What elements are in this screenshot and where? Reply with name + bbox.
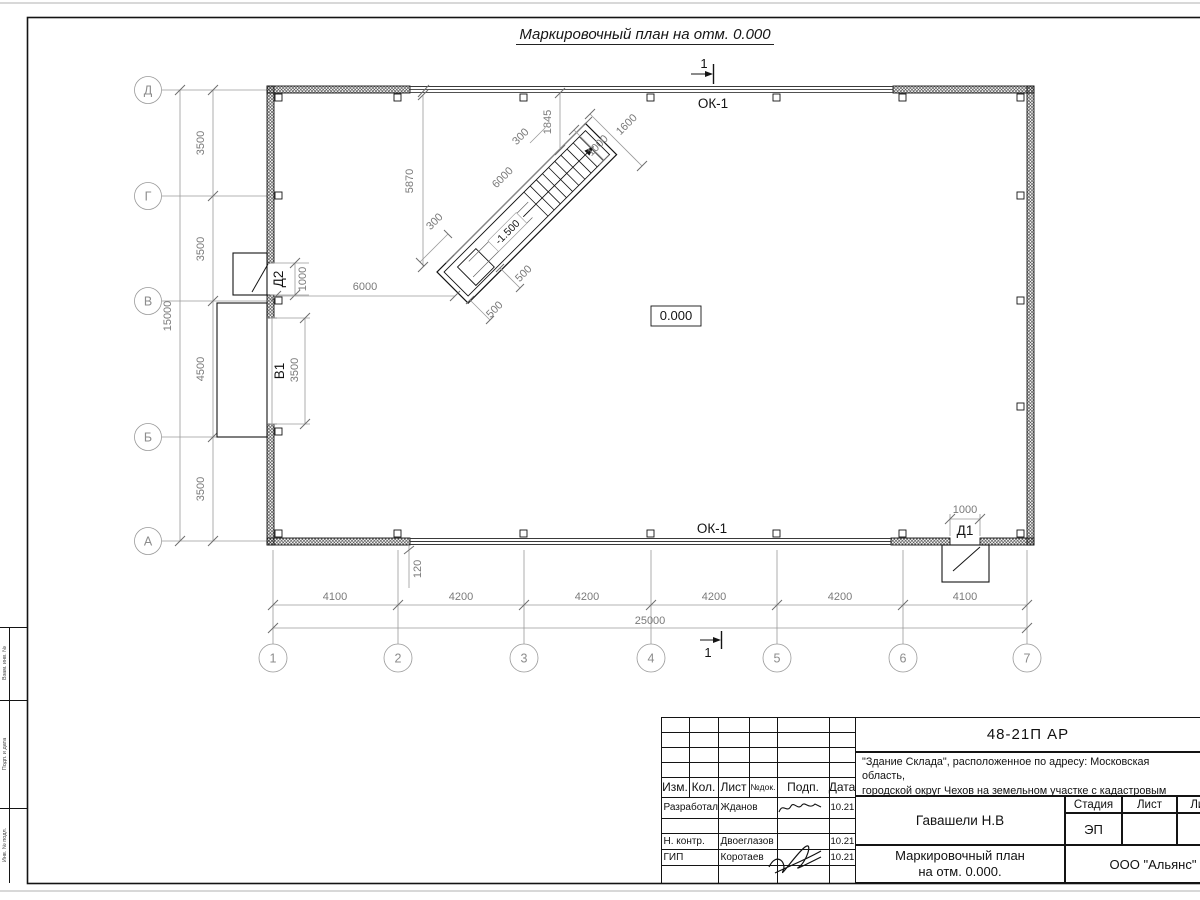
dim-text: 6000 xyxy=(490,165,516,191)
rev-cell xyxy=(829,762,856,778)
rev-cell xyxy=(661,732,690,748)
frame-left-strip: Взам. инв. № Подп. и дата Инв. № подл. xyxy=(0,628,28,884)
window-band-top xyxy=(410,87,893,93)
rev-cell xyxy=(829,747,856,763)
sheets-value xyxy=(1177,813,1200,845)
signer-name: Коротаев xyxy=(718,849,778,866)
dim-text: 1000 xyxy=(953,504,977,516)
desc-line: "Здание Склада", расположенное по адресу… xyxy=(862,756,1149,782)
company-name: ООО "Альянс" xyxy=(1065,845,1200,883)
signer-role: Разработал xyxy=(661,797,719,819)
gate-label: В1 xyxy=(272,363,287,380)
signer-date: 10.21 xyxy=(829,797,856,819)
annotations: ОК-1 ОК-1 0.000 6000 120 1 1 xyxy=(271,56,728,660)
dim-text: 4200 xyxy=(575,591,599,603)
signature-cell xyxy=(777,833,830,850)
rev-header: №док. xyxy=(749,777,778,798)
dim-text: 4200 xyxy=(449,591,473,603)
axis-letter: В xyxy=(144,295,152,309)
sheet-header: Лист xyxy=(1122,796,1177,813)
rev-cell xyxy=(777,732,830,748)
svg-text:1: 1 xyxy=(704,645,711,660)
axis-letter: Б xyxy=(144,431,152,445)
dim-text: 3500 xyxy=(195,131,207,155)
dim-text: 1845 xyxy=(542,110,554,134)
doc-code: 48-21П АР xyxy=(855,717,1200,752)
dim-text: 300 xyxy=(424,211,445,232)
window-mark-bottom: ОК-1 xyxy=(697,521,727,536)
drawing-sheet: Маркировочный план на отм. 0.000 Взам. и… xyxy=(0,0,1200,900)
desc-line: городской округ Чехов на земельном участ… xyxy=(862,785,1166,797)
rev-cell xyxy=(689,717,719,733)
rev-cell xyxy=(718,717,750,733)
rev-header: Лист xyxy=(718,777,750,798)
rev-header: Кол. xyxy=(689,777,719,798)
empty-cell xyxy=(718,818,778,834)
section-mark-top: 1 xyxy=(691,56,714,84)
rev-cell xyxy=(689,762,719,778)
signer-date: 10.21 xyxy=(829,849,856,866)
dim-text: 3500 xyxy=(195,237,207,261)
section-mark-bottom: 1 xyxy=(700,631,722,660)
signature-cell xyxy=(777,849,830,866)
rev-header: Изм. xyxy=(661,777,690,798)
dim-text: 4100 xyxy=(323,591,347,603)
dim-text: 300 xyxy=(510,126,531,147)
stage-value: ЭП xyxy=(1065,813,1122,845)
svg-text:1: 1 xyxy=(700,56,707,71)
rev-cell xyxy=(749,732,778,748)
rev-cell xyxy=(718,747,750,763)
empty-cell xyxy=(661,865,719,884)
empty-cell xyxy=(718,865,778,884)
rev-cell xyxy=(829,732,856,748)
frame-label: Подп. и дата xyxy=(2,737,8,770)
rev-cell xyxy=(661,762,690,778)
dim-text: 500 xyxy=(513,263,534,284)
stage-header: Стадия xyxy=(1065,796,1122,813)
dim-text: 3500 xyxy=(289,358,301,382)
window-band-bottom xyxy=(410,539,891,545)
dim-text: 5870 xyxy=(404,169,416,193)
rev-cell xyxy=(718,762,750,778)
empty-cell xyxy=(777,865,830,884)
empty-cell xyxy=(661,818,719,834)
rev-cell xyxy=(777,717,830,733)
elevation-mark: 0.000 xyxy=(660,308,693,323)
dim-text: 4200 xyxy=(702,591,726,603)
frame-label: Инв. № подл. xyxy=(2,827,8,862)
rev-header: Дата xyxy=(829,777,856,798)
dim-text: 1000 xyxy=(297,267,309,291)
rev-header: Подп. xyxy=(777,777,830,798)
rev-cell xyxy=(749,717,778,733)
stair-pit: -1.500 5870 6000 1845 1600 1000 300 300 xyxy=(404,85,647,324)
dim-text: 120 xyxy=(412,560,424,578)
rev-cell xyxy=(749,762,778,778)
wall-columns xyxy=(275,94,1024,537)
walls xyxy=(267,86,1034,545)
rev-cell xyxy=(777,762,830,778)
rev-cell xyxy=(689,747,719,763)
dim-text-total: 15000 xyxy=(162,301,174,332)
signer-name: Жданов xyxy=(718,797,778,819)
dim-text: 3500 xyxy=(195,477,207,501)
signature-table: Разработал Жданов 10.21 Н. контр. Двоегл… xyxy=(661,797,855,883)
axis-number: 5 xyxy=(774,652,781,666)
dim-text: 1600 xyxy=(614,112,640,138)
dim-text-total: 25000 xyxy=(635,615,666,627)
axis-number: 7 xyxy=(1024,652,1031,666)
title-block: Изм. Кол. Лист №док. Подп. Дата Разработ… xyxy=(661,717,1200,883)
axis-letter: Д xyxy=(144,84,153,98)
rev-cell xyxy=(749,747,778,763)
axis-letter: Г xyxy=(145,190,152,204)
axis-number: 2 xyxy=(395,652,402,666)
door-label: Д2 xyxy=(271,271,286,288)
sheets-header: Листов xyxy=(1177,796,1200,813)
empty-cell xyxy=(829,865,856,884)
axis-number: 3 xyxy=(521,652,528,666)
signer-name: Двоеглазов xyxy=(718,833,778,850)
empty-cell xyxy=(777,818,830,834)
axis-grid-cols: 1 2 3 4 5 6 7 4100 4200 4200 4200 4200 4… xyxy=(259,550,1041,672)
project-description: "Здание Склада", расположенное по адресу… xyxy=(855,752,1200,796)
dim-text: 4500 xyxy=(195,357,207,381)
signer-date: 10.21 xyxy=(829,833,856,850)
rev-cell xyxy=(718,732,750,748)
signer-role: ГИП xyxy=(661,849,719,866)
axis-number: 4 xyxy=(648,652,655,666)
rev-cell xyxy=(689,732,719,748)
gate-v1: В1 3500 xyxy=(217,303,310,437)
rev-cell xyxy=(829,717,856,733)
dim-text: 6000 xyxy=(353,281,377,293)
sheet-title-cell: Маркировочный план на отм. 0.000. xyxy=(855,845,1065,883)
approver-name: Гавашели Н.В xyxy=(855,796,1065,845)
sheet-value xyxy=(1122,813,1177,845)
signature-cell xyxy=(777,797,830,819)
dim-text: 4100 xyxy=(953,591,977,603)
revision-table: Изм. Кол. Лист №док. Подп. Дата xyxy=(661,717,855,797)
sheet-title-line: на отм. 0.000. xyxy=(918,864,1001,880)
window-mark-top: ОК-1 xyxy=(698,96,728,111)
frame-label: Взам. инв. № xyxy=(2,646,8,680)
signer-role: Н. контр. xyxy=(661,833,719,850)
rev-cell xyxy=(661,717,690,733)
rev-cell xyxy=(661,747,690,763)
empty-cell xyxy=(829,818,856,834)
sheet-title-line: Маркировочный план xyxy=(895,848,1025,864)
dim-text: 4200 xyxy=(828,591,852,603)
axis-number: 6 xyxy=(900,652,907,666)
axis-number: 1 xyxy=(270,652,277,666)
rev-cell xyxy=(777,747,830,763)
axis-letter: А xyxy=(144,535,153,549)
door-label: Д1 xyxy=(957,523,974,538)
